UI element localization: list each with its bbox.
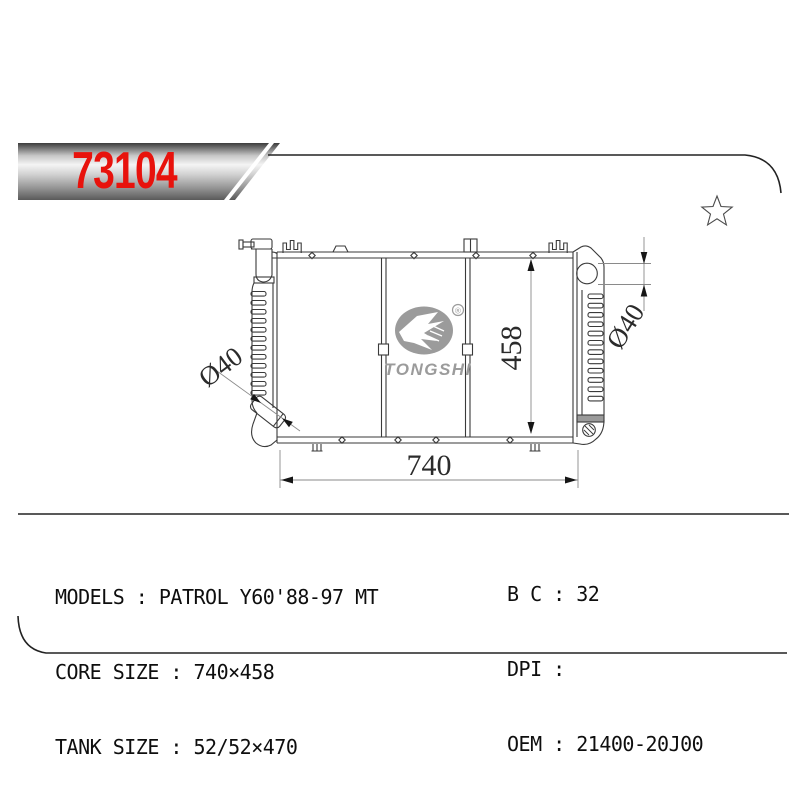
spec-list-right: B C : 32 DPI : OEM : 21400-20J00 NISSENS… <box>507 533 703 800</box>
registered-mark-icon: ® <box>455 307 461 316</box>
left-tank-ribs <box>251 292 266 396</box>
logo-wordmark: TONGSHI <box>384 360 472 379</box>
dim-height-label: 458 <box>495 326 528 371</box>
top-border-line <box>268 155 781 193</box>
dim-width-label: 740 <box>407 449 452 482</box>
spec-list-left: MODELS : PATROL Y60'88-97 MT CORE SIZE :… <box>55 536 378 800</box>
dim-left-pipe-label: Ø40 <box>193 341 248 393</box>
spec-dpi: DPI : <box>507 656 703 683</box>
spec-oem: OEM : 21400-20J00 <box>507 731 703 758</box>
right-tank-ribs <box>588 294 603 401</box>
tongshi-logo: ® TONGSHI <box>384 305 472 380</box>
dim-right-pipe-label: Ø40 <box>600 299 650 354</box>
star-icon <box>702 196 732 225</box>
spec-core-size: CORE SIZE : 740×458 <box>55 659 378 686</box>
spec-bc: B C : 32 <box>507 581 703 608</box>
spec-models: MODELS : PATROL Y60'88-97 MT <box>55 584 378 611</box>
radiator-datasheet-page: 73104 <box>0 0 800 800</box>
drain-plug <box>583 424 596 437</box>
spec-tank-size: TANK SIZE : 52/52×470 <box>55 734 378 761</box>
